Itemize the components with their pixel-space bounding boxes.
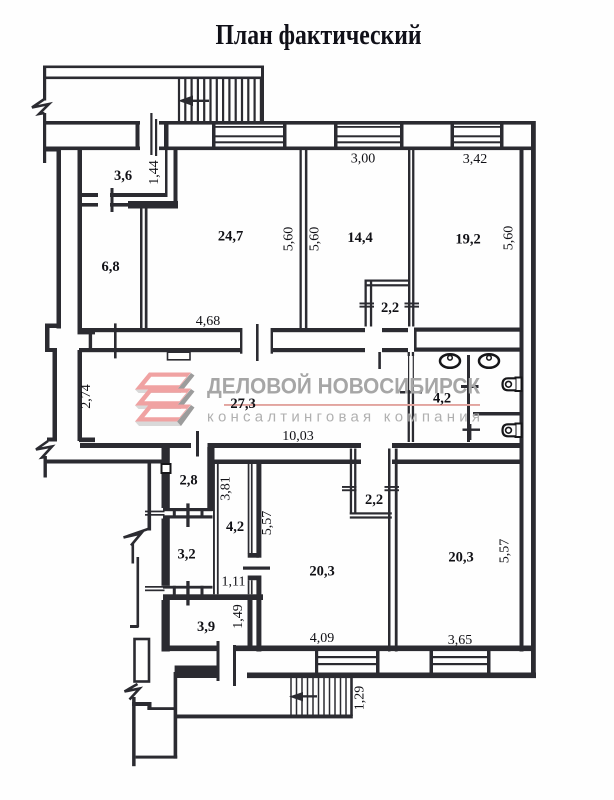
svg-text:3,9: 3,9: [197, 619, 215, 635]
svg-text:20,3: 20,3: [309, 564, 334, 580]
svg-text:1,29: 1,29: [353, 686, 368, 711]
svg-text:27,3: 27,3: [230, 396, 255, 412]
svg-text:1,44: 1,44: [147, 160, 162, 185]
svg-text:2,8: 2,8: [179, 473, 197, 489]
svg-text:План фактический: План фактический: [216, 20, 422, 51]
svg-text:14,4: 14,4: [347, 230, 372, 246]
svg-text:4,2: 4,2: [226, 519, 244, 535]
svg-text:4,09: 4,09: [310, 631, 335, 646]
svg-text:10,03: 10,03: [282, 429, 314, 444]
svg-text:3,2: 3,2: [177, 547, 195, 563]
svg-text:2,74: 2,74: [79, 384, 94, 409]
svg-text:5,60: 5,60: [308, 227, 323, 252]
svg-text:3,42: 3,42: [463, 152, 488, 167]
svg-text:1,49: 1,49: [231, 604, 246, 629]
svg-text:3,65: 3,65: [448, 633, 473, 648]
svg-text:3,81: 3,81: [219, 476, 234, 501]
svg-text:5,57: 5,57: [498, 539, 513, 564]
svg-text:2,2: 2,2: [365, 492, 383, 508]
svg-text:19,2: 19,2: [455, 232, 480, 248]
svg-text:3,00: 3,00: [351, 152, 376, 167]
svg-text:5,60: 5,60: [502, 226, 517, 251]
svg-text:5,57: 5,57: [260, 511, 275, 536]
svg-text:3,6: 3,6: [114, 168, 132, 184]
svg-text:24,7: 24,7: [218, 229, 243, 245]
svg-text:4,68: 4,68: [196, 314, 221, 329]
svg-text:5,60: 5,60: [282, 227, 297, 252]
svg-text:1,11: 1,11: [222, 575, 246, 590]
svg-text:20,3: 20,3: [448, 550, 473, 566]
svg-text:6,8: 6,8: [101, 259, 119, 275]
svg-text:4,2: 4,2: [433, 391, 451, 407]
svg-text:2,2: 2,2: [381, 300, 399, 316]
